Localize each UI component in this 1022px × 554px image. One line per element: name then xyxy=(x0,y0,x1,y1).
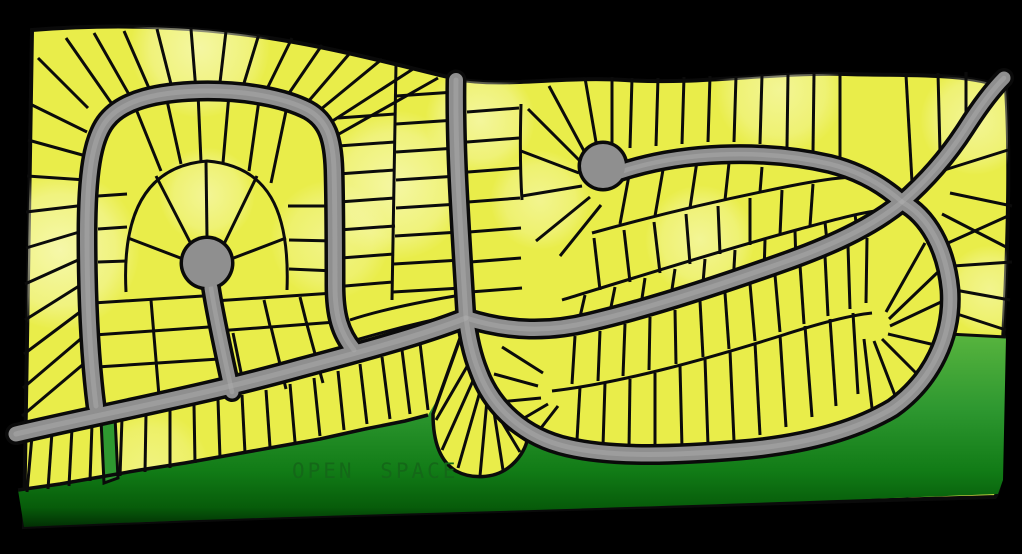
subdivision-plat-map: OPEN SPACE xyxy=(0,0,1022,554)
east-culdesac-bulb xyxy=(581,144,625,188)
west-culdesac-bulb xyxy=(183,239,231,287)
plat-map-stage: OPEN SPACE xyxy=(0,0,1022,554)
open-space-label: OPEN SPACE xyxy=(292,459,458,483)
